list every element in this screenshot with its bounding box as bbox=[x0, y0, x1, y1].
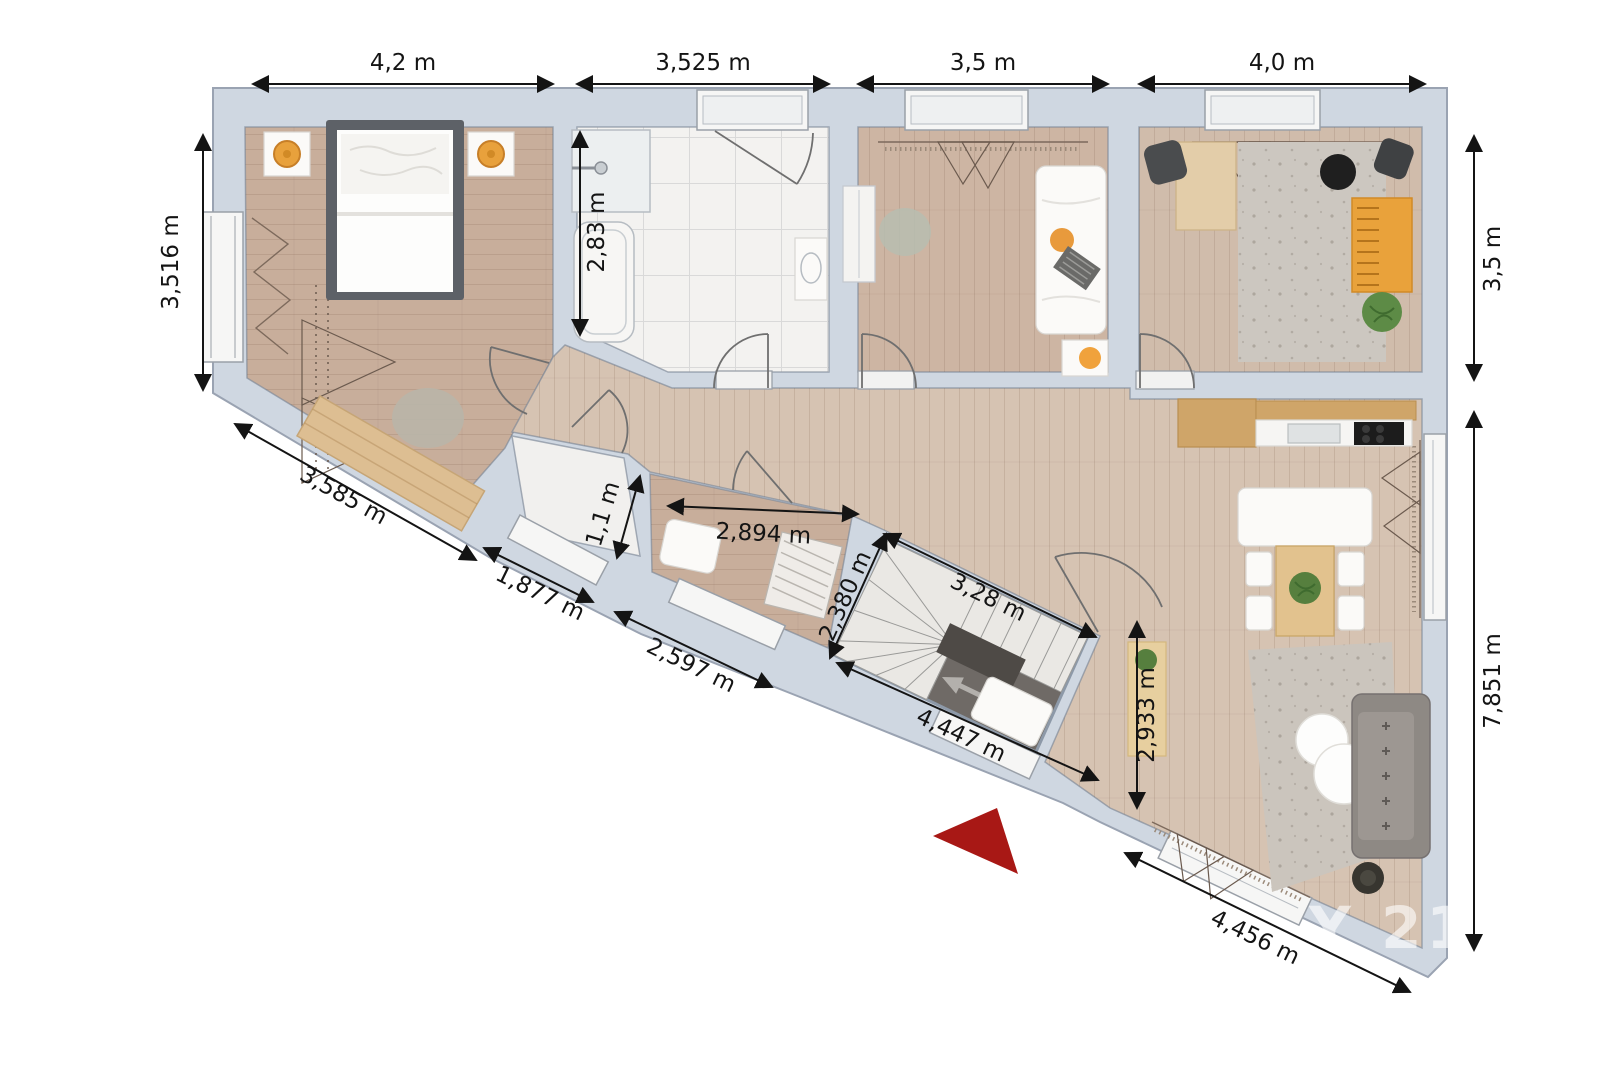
dim-living-left: 2,933 m bbox=[1134, 667, 1160, 763]
bed bbox=[326, 120, 464, 300]
dim-top-room3: 3,5 m bbox=[950, 50, 1016, 76]
pet-bed bbox=[1352, 862, 1384, 894]
floorplan-page: CENTURY 21 bbox=[0, 0, 1600, 1067]
plant-top-right bbox=[1362, 292, 1402, 332]
desk bbox=[1176, 142, 1236, 230]
entrance-arrow bbox=[933, 808, 1018, 874]
window-top-right-room bbox=[1205, 90, 1320, 130]
orange-bed bbox=[1352, 198, 1412, 292]
window-bedroom-left bbox=[203, 212, 243, 362]
dim-top-bedroom: 4,2 m bbox=[370, 50, 436, 76]
nightstand-left bbox=[264, 132, 310, 176]
bathroom-vanity bbox=[795, 238, 827, 300]
dim-right-room4: 3,5 m bbox=[1480, 226, 1506, 292]
dim-small-room-width: 2,894 m bbox=[715, 519, 812, 550]
sofa bbox=[1352, 694, 1430, 858]
dim-left-bedroom: 3,516 m bbox=[158, 214, 184, 310]
middle-room-wardrobe bbox=[843, 186, 875, 282]
window-bathroom-top bbox=[697, 90, 808, 130]
window-middle-room-top bbox=[905, 90, 1028, 130]
middle-room-mat bbox=[1062, 340, 1108, 376]
nightstand-right bbox=[468, 132, 514, 176]
floorplan-drawing: CENTURY 21 bbox=[0, 0, 1600, 1067]
kitchen-counter bbox=[1178, 399, 1416, 447]
daybed bbox=[1036, 166, 1106, 334]
dim-right-living: 7,851 m bbox=[1480, 633, 1506, 729]
bedroom-rug bbox=[392, 388, 464, 448]
round-side-table bbox=[1320, 154, 1356, 190]
dining-console bbox=[1238, 488, 1372, 546]
middle-room-rug bbox=[879, 208, 931, 256]
dim-top-room4: 4,0 m bbox=[1249, 50, 1315, 76]
dim-top-bathroom: 3,525 m bbox=[655, 50, 751, 76]
dim-bathroom-depth: 2,83 m bbox=[584, 192, 610, 273]
window-living-right bbox=[1424, 434, 1446, 620]
